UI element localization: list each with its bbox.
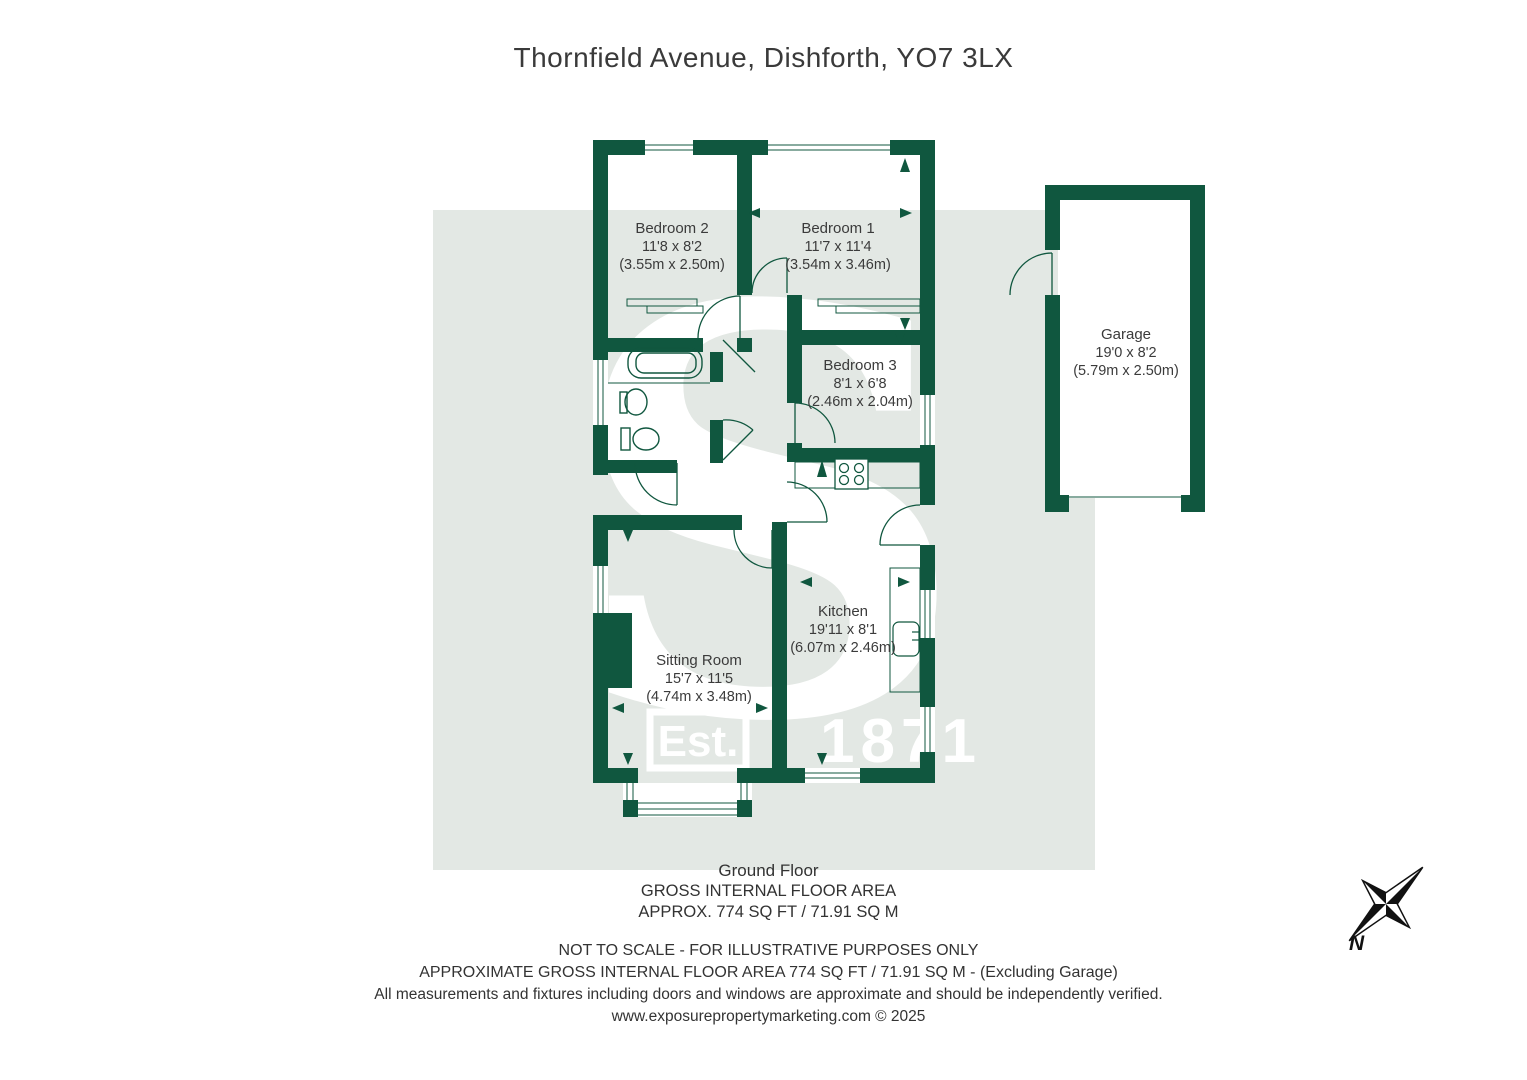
room-dims-metric: (6.07m x 2.46m) xyxy=(743,639,943,657)
area-heading: GROSS INTERNAL FLOOR AREA xyxy=(0,881,1527,902)
room-dims-metric: (3.54m x 3.46m) xyxy=(738,256,938,274)
room-dims-imperial: 8'1 x 6'8 xyxy=(760,375,960,393)
room-label-bedroom-1: Bedroom 1 11'7 x 11'4 (3.54m x 3.46m) xyxy=(738,220,938,274)
room-dims-imperial: 19'11 x 8'1 xyxy=(743,621,943,639)
disclaimer-measurements: All measurements and fixtures including … xyxy=(0,984,1527,1006)
window xyxy=(920,707,935,752)
window xyxy=(768,140,890,155)
room-label-sitting-room: Sitting Room 15'7 x 11'5 (4.74m x 3.48m) xyxy=(599,652,799,706)
window xyxy=(645,140,693,155)
floorplan-page: Thornfield Avenue, Dishforth, YO7 3LX S … xyxy=(0,0,1527,1080)
room-name: Garage xyxy=(1026,326,1226,344)
disclaimer-scale: NOT TO SCALE - FOR ILLUSTRATIVE PURPOSES… xyxy=(0,940,1527,962)
footer: Ground Floor GROSS INTERNAL FLOOR AREA A… xyxy=(0,860,1527,1028)
website-credit: www.exposurepropertymarketing.com © 2025 xyxy=(0,1006,1527,1028)
room-dims-imperial: 11'7 x 11'4 xyxy=(738,238,938,256)
watermark-est-label: Est. xyxy=(658,717,739,766)
room-label-kitchen: Kitchen 19'11 x 8'1 (6.07m x 2.46m) xyxy=(743,603,943,657)
room-name: Bedroom 3 xyxy=(760,357,960,375)
room-label-bedroom-3: Bedroom 3 8'1 x 6'8 (2.46m x 2.04m) xyxy=(760,357,960,411)
floor-label: Ground Floor xyxy=(0,860,1527,881)
room-label-garage: Garage 19'0 x 8'2 (5.79m x 2.50m) xyxy=(1026,326,1226,380)
bay-window xyxy=(623,783,752,817)
room-dims-metric: (2.46m x 2.04m) xyxy=(760,393,960,411)
disclaimer-area: APPROXIMATE GROSS INTERNAL FLOOR AREA 77… xyxy=(0,962,1527,984)
hob-icon xyxy=(835,459,868,489)
room-dims-metric: (5.79m x 2.50m) xyxy=(1026,362,1226,380)
room-name: Bedroom 1 xyxy=(738,220,938,238)
area-value: APPROX. 774 SQ FT / 71.91 SQ M xyxy=(0,902,1527,923)
window xyxy=(593,360,608,425)
door-arc xyxy=(1010,253,1052,295)
window xyxy=(593,566,608,613)
window xyxy=(805,768,860,783)
room-name: Kitchen xyxy=(743,603,943,621)
room-dims-imperial: 19'0 x 8'2 xyxy=(1026,344,1226,362)
room-dims-imperial: 15'7 x 11'5 xyxy=(599,670,799,688)
room-dims-metric: (4.74m x 3.48m) xyxy=(599,688,799,706)
watermark-year: 1871 xyxy=(820,707,982,776)
